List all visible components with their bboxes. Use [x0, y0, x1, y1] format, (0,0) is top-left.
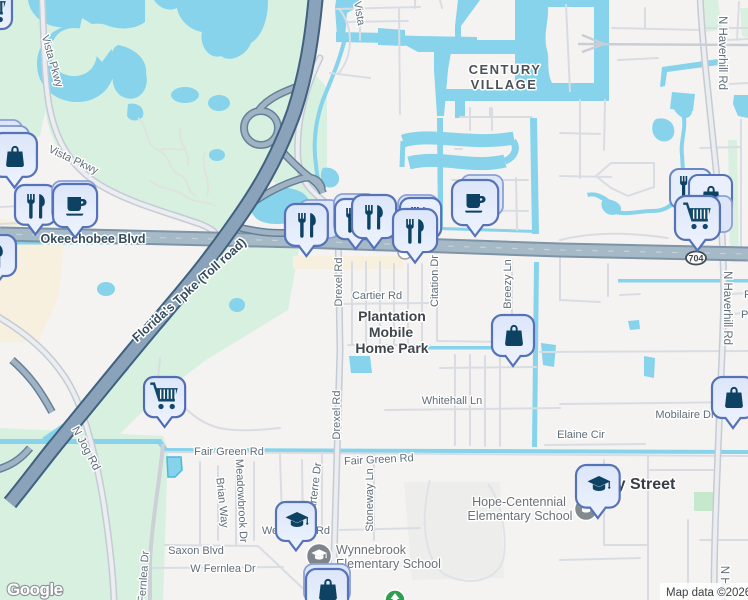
svg-text:VILLAGE: VILLAGE — [471, 77, 538, 92]
svg-text:Breezy Ln: Breezy Ln — [502, 259, 514, 309]
svg-text:Elementary School: Elementary School — [336, 557, 441, 571]
svg-text:Saxon Blvd: Saxon Blvd — [168, 545, 224, 557]
svg-text:Whitehall Ln: Whitehall Ln — [422, 395, 483, 407]
svg-text:Okeechobee Blvd: Okeechobee Blvd — [41, 232, 146, 246]
svg-text:Fair Green Rd: Fair Green Rd — [194, 446, 264, 458]
svg-text:N Haverhill Rd: N Haverhill Rd — [716, 16, 728, 90]
svg-text:Drexel Rd: Drexel Rd — [333, 258, 345, 307]
svg-text:Elementary School: Elementary School — [468, 509, 573, 523]
svg-text:y Street: y Street — [617, 476, 676, 493]
svg-text:W Fernlea Dr: W Fernlea Dr — [190, 563, 256, 575]
svg-text:Map data ©2026: Map data ©2026 — [666, 587, 748, 599]
svg-text:Mobile: Mobile — [369, 324, 414, 340]
svg-text:Rd: Rd — [316, 525, 330, 537]
svg-text:704: 704 — [688, 254, 703, 264]
svg-text:Drexel Rd: Drexel Rd — [331, 391, 343, 440]
svg-text:Cartier Rd: Cartier Rd — [352, 290, 402, 302]
svg-text:Plantation: Plantation — [358, 308, 426, 324]
svg-text:CENTURY: CENTURY — [469, 62, 542, 77]
svg-text:Pin: Pin — [741, 309, 748, 321]
svg-text:Hope-Centennial: Hope-Centennial — [472, 495, 566, 509]
svg-text:Home Park: Home Park — [355, 340, 428, 356]
svg-text:Google: Google — [7, 580, 63, 599]
svg-text:Pin: Pin — [744, 289, 748, 301]
svg-text:Mobilaire Dr: Mobilaire Dr — [655, 409, 715, 421]
svg-text:Wynnebrook: Wynnebrook — [336, 543, 407, 557]
svg-text:Citation Dr: Citation Dr — [429, 255, 441, 307]
svg-text:Elaine Cir: Elaine Cir — [557, 429, 605, 441]
svg-text:Stoneway Ln: Stoneway Ln — [364, 468, 376, 532]
svg-text:N Haverhill Rd: N Haverhill Rd — [721, 271, 733, 345]
